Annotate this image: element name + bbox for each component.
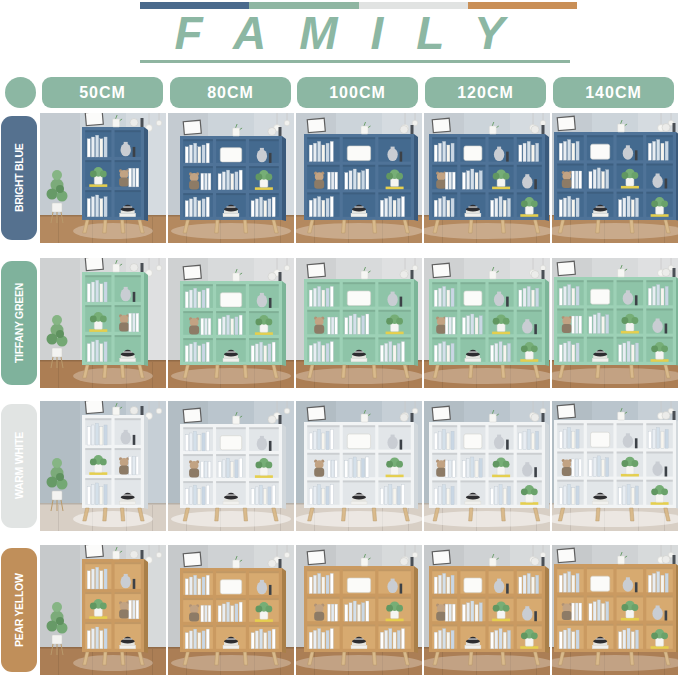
bookshelf-illustration	[168, 545, 294, 675]
bookshelf-illustration	[296, 113, 422, 243]
product-photo-tiffany-green-50cm	[40, 258, 166, 388]
bookshelf-illustration	[40, 113, 166, 243]
product-photo-warm-white-80cm	[168, 401, 294, 531]
product-photo-pear-yellow-100cm	[296, 545, 422, 675]
row-label-bright-blue: BRIGHT BLUE	[1, 116, 37, 240]
bookshelf-illustration	[424, 258, 550, 388]
product-photo-pear-yellow-120cm	[424, 545, 550, 675]
bookshelf-illustration	[40, 258, 166, 388]
product-photo-warm-white-50cm	[40, 401, 166, 531]
bookshelf-illustration	[296, 545, 422, 675]
product-photo-pear-yellow-50cm	[40, 545, 166, 675]
size-pill-120cm: 120CM	[425, 77, 546, 108]
product-photo-bright-blue-120cm	[424, 113, 550, 243]
size-pill-50cm: 50CM	[42, 77, 163, 108]
product-photo-warm-white-100cm	[296, 401, 422, 531]
product-photo-bright-blue-140cm	[552, 113, 678, 243]
size-pill-100cm: 100CM	[297, 77, 418, 108]
size-header-dot	[5, 77, 36, 108]
size-pill-140cm: 140CM	[553, 77, 674, 108]
product-photo-pear-yellow-80cm	[168, 545, 294, 675]
size-pill-80cm: 80CM	[170, 77, 291, 108]
product-photo-bright-blue-100cm	[296, 113, 422, 243]
product-photo-tiffany-green-100cm	[296, 258, 422, 388]
bookshelf-illustration	[168, 258, 294, 388]
product-photo-bright-blue-50cm	[40, 113, 166, 243]
page: FAMILY 50CM 80CM 100CM 120CM 140CM BRIGH…	[0, 0, 679, 680]
bookshelf-illustration	[424, 545, 550, 675]
product-photo-bright-blue-80cm	[168, 113, 294, 243]
row-label-pear-yellow: PEAR YELLOW	[1, 548, 37, 672]
bookshelf-illustration	[40, 545, 166, 675]
product-photo-tiffany-green-140cm	[552, 258, 678, 388]
row-label-tiffany-green: TIFFANY GREEN	[1, 261, 37, 385]
bookshelf-illustration	[552, 401, 678, 531]
bookshelf-illustration	[552, 258, 678, 388]
product-photo-warm-white-140cm	[552, 401, 678, 531]
bookshelf-illustration	[424, 401, 550, 531]
bookshelf-illustration	[168, 401, 294, 531]
bookshelf-illustration	[552, 113, 678, 243]
row-label-warm-white: WARM WHITE	[1, 404, 37, 528]
bookshelf-illustration	[168, 113, 294, 243]
bookshelf-illustration	[424, 113, 550, 243]
bookshelf-illustration	[296, 258, 422, 388]
product-photo-tiffany-green-80cm	[168, 258, 294, 388]
title-underline	[140, 60, 570, 63]
product-photo-tiffany-green-120cm	[424, 258, 550, 388]
bookshelf-illustration	[296, 401, 422, 531]
bookshelf-illustration	[552, 545, 678, 675]
bookshelf-illustration	[40, 401, 166, 531]
product-photo-pear-yellow-140cm	[552, 545, 678, 675]
product-photo-warm-white-120cm	[424, 401, 550, 531]
family-title: FAMILY	[0, 6, 679, 60]
